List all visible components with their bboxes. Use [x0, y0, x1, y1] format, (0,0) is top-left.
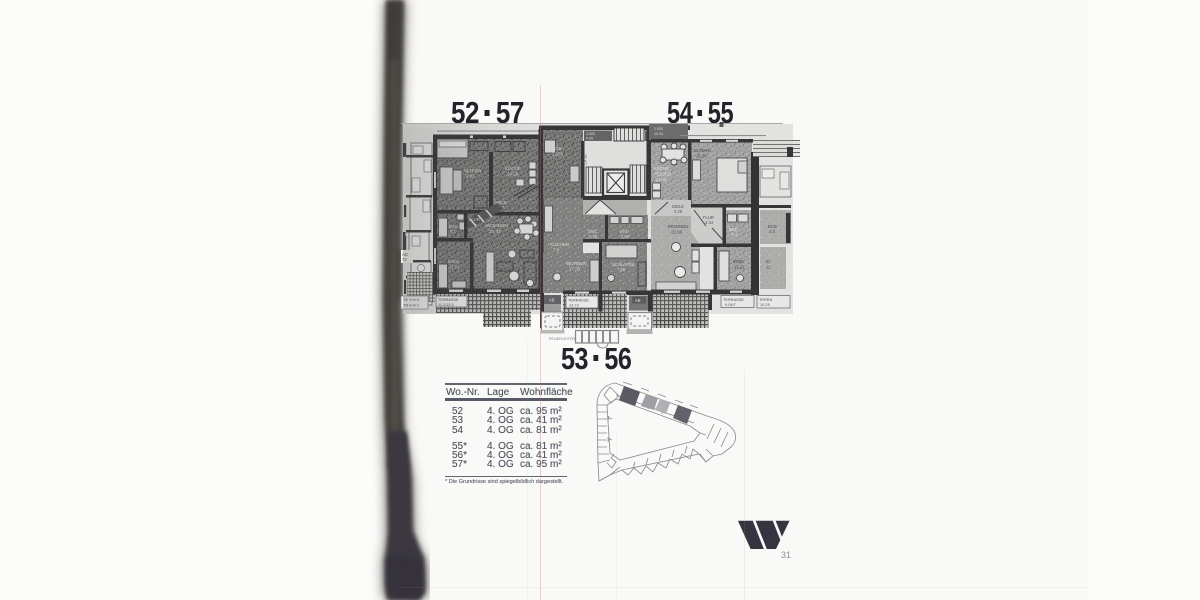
svg-text:FEUERLEITER: FEUERLEITER	[549, 337, 575, 341]
